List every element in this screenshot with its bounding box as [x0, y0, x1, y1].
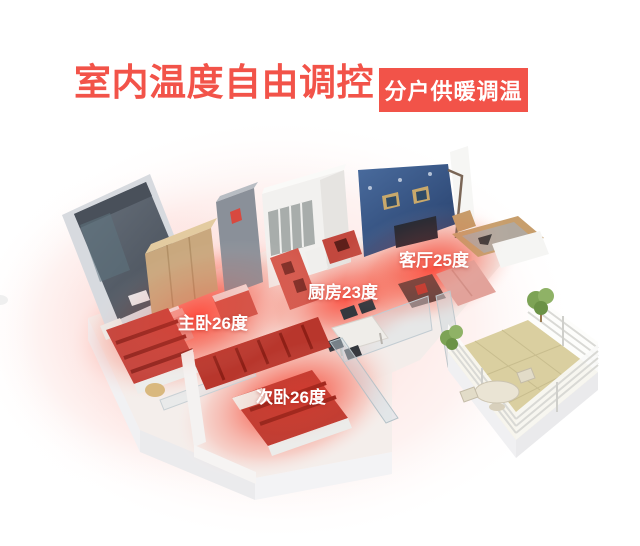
- floorplan-render: [0, 0, 640, 546]
- room-label-living-room: 客厅25度: [399, 246, 469, 271]
- room-label-master-bedroom: 主卧26度: [178, 309, 248, 334]
- room-label-second-bedroom: 次卧26度: [256, 383, 326, 408]
- room-label-kitchen: 厨房23度: [308, 278, 378, 303]
- promo-graphic: 室内温度自由调控 分户供暖调温: [0, 0, 640, 546]
